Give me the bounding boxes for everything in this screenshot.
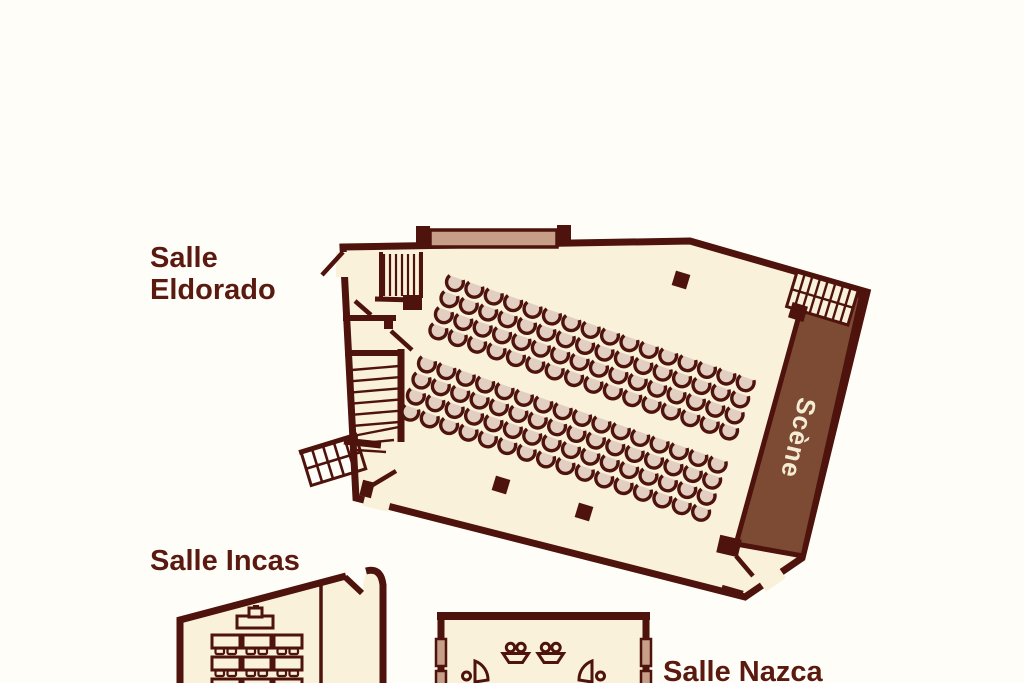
label-salle-eldorado-line1: Salle xyxy=(150,242,218,274)
label-salle-nazca: Salle Nazca xyxy=(663,656,823,683)
chair-icon xyxy=(278,671,287,677)
sink-icon xyxy=(538,643,564,662)
table-icon xyxy=(243,635,271,648)
table-icon xyxy=(212,657,240,670)
chair-icon xyxy=(290,649,299,655)
table-icon xyxy=(243,679,271,683)
chair-icon xyxy=(247,649,256,655)
label-salle-eldorado-line2: Eldorado xyxy=(150,274,276,306)
chair-icon xyxy=(216,649,225,655)
room-salle-nazca xyxy=(436,612,651,683)
wall-post xyxy=(557,225,571,245)
chair-icon xyxy=(278,649,287,655)
chair-back xyxy=(253,605,259,609)
chair-icon xyxy=(216,671,225,677)
table-icon xyxy=(243,657,271,670)
chair-icon xyxy=(228,649,237,655)
chair-icon xyxy=(259,671,268,677)
table-icon xyxy=(212,679,240,683)
wall-post xyxy=(416,226,430,246)
room-salle-incas xyxy=(180,570,383,683)
chair-icon xyxy=(247,671,256,677)
wall-stub xyxy=(384,316,393,329)
chair-icon xyxy=(290,671,299,677)
chair-icon xyxy=(228,671,237,677)
chair-icon xyxy=(259,649,268,655)
room-salle-eldorado: Scène xyxy=(299,225,867,597)
table-icon xyxy=(212,635,240,648)
floor-plan: Scène xyxy=(0,0,1024,683)
top-partition xyxy=(430,230,557,247)
chair-icon xyxy=(249,608,262,617)
label-salle-incas: Salle Incas xyxy=(150,545,300,577)
table-icon xyxy=(274,679,302,683)
table-icon xyxy=(274,635,302,648)
stair-landing xyxy=(403,295,422,310)
table-icon xyxy=(274,657,302,670)
sink-icon xyxy=(503,643,529,662)
